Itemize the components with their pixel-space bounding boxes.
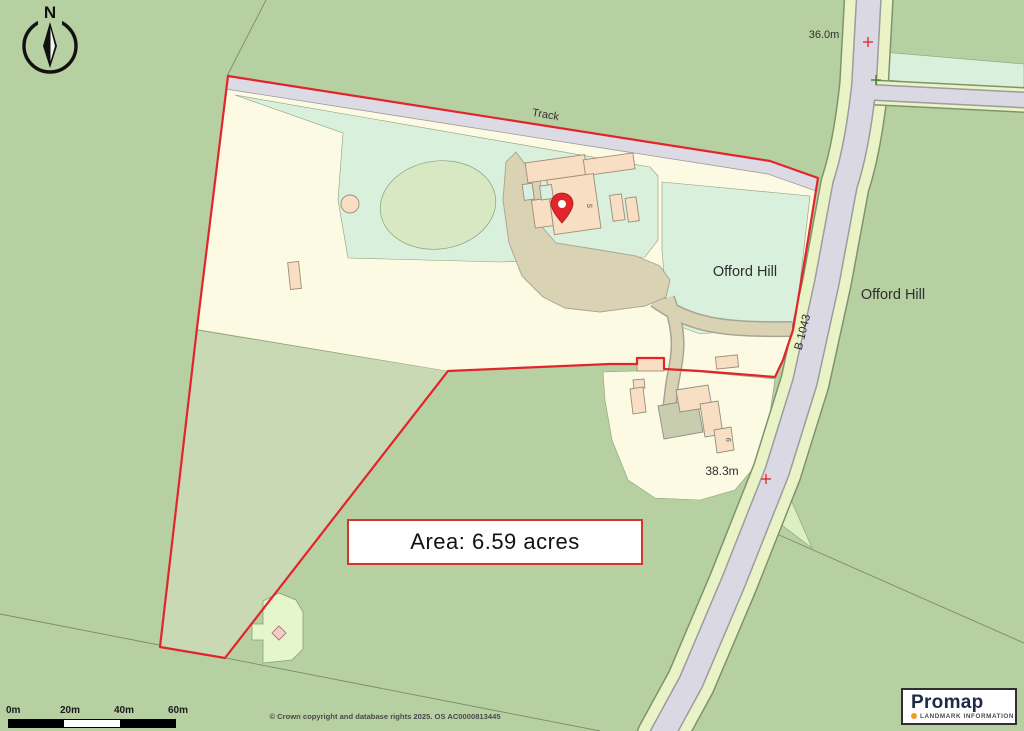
promap-logo: Promap LANDMARK INFORMATION [901, 688, 1017, 725]
spot-height-38m-label: 38.3m [705, 464, 738, 478]
promap-tagline-row: LANDMARK INFORMATION [911, 713, 1014, 720]
site-plan-map: Track Offord Hill Offord Hill B 1043 36.… [0, 0, 1024, 731]
orange-dot-icon [911, 713, 917, 719]
scale-tick-60m: 60m [168, 705, 188, 716]
compass-icon: N [8, 2, 92, 86]
offord-hill-field-label: Offord Hill [713, 264, 777, 280]
compass-rose: N [8, 2, 92, 86]
copyright-notice: © Crown copyright and database rights 20… [250, 712, 520, 721]
spot-height-36m-label: 36.0m [809, 29, 840, 41]
area-text: Area: 6.59 acres [410, 529, 579, 555]
scale-segment-black-2 [120, 720, 175, 727]
building-outbuilding-1 [522, 183, 534, 200]
side-road-carriageway [864, 92, 1024, 100]
scale-segment-black-1 [9, 720, 64, 727]
scale-tick-20m: 20m [60, 705, 80, 716]
building-lower-shed [630, 387, 646, 414]
building-se-corner [715, 355, 738, 369]
building-round-structure [341, 195, 359, 213]
scale-tick-0m: 0m [6, 705, 20, 716]
map-canvas: Track Offord Hill Offord Hill B 1043 36.… [0, 0, 1024, 731]
building-outbuilding-2 [540, 185, 554, 201]
building-number-5-label: 5 [585, 203, 594, 208]
building-field-shed [288, 261, 302, 289]
building-house-annex [531, 198, 553, 228]
promap-tagline-text: LANDMARK INFORMATION [920, 713, 1014, 720]
compass-north-label: N [44, 3, 56, 22]
area-annotation-box: Area: 6.59 acres [347, 519, 643, 565]
offord-hill-area-label: Offord Hill [861, 287, 925, 303]
scale-segment-white [64, 720, 119, 727]
scale-tick-40m: 40m [114, 705, 134, 716]
building-boundary-notch [637, 358, 664, 371]
promap-brand-text: Promap [911, 694, 984, 712]
scale-bar-segments [8, 719, 176, 728]
scale-bar: 0m 20m 40m 60m [0, 703, 200, 729]
